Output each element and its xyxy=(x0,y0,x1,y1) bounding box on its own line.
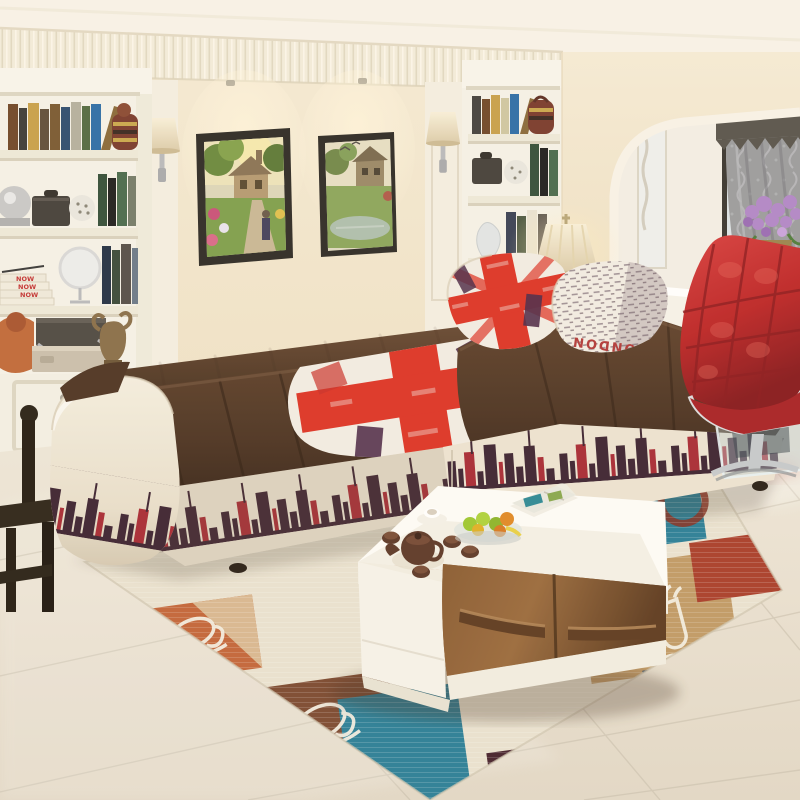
living-room-photo: NOW NOW NOW xyxy=(0,0,800,800)
scene-canvas: NOW NOW NOW xyxy=(0,0,800,800)
warm-light-overlay xyxy=(0,0,800,800)
